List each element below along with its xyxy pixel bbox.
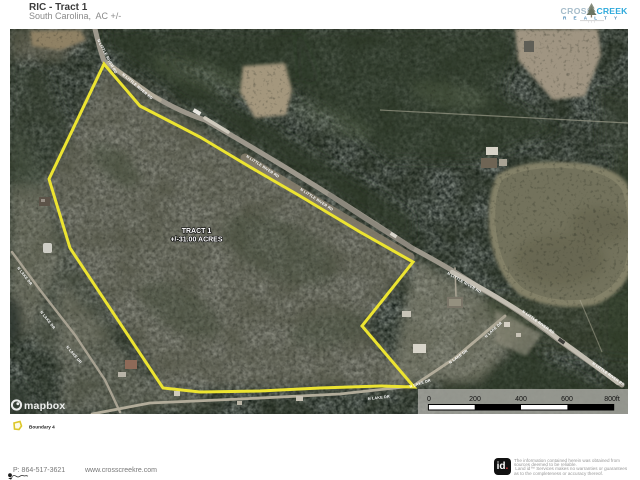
svg-text:Boundary 4: Boundary 4	[29, 424, 55, 429]
svg-text:TRACT 1: TRACT 1	[182, 228, 212, 235]
svg-text:REALTY: REALTY	[563, 15, 624, 20]
svg-text:mapbox: mapbox	[24, 400, 65, 412]
svg-text:***: ***	[588, 22, 597, 25]
svg-text:200: 200	[469, 396, 481, 403]
svg-text:600: 600	[561, 396, 573, 403]
svg-text:0: 0	[427, 396, 431, 403]
svg-text:400: 400	[515, 396, 527, 403]
svg-text:+/-31.00 ACRES: +/-31.00 ACRES	[170, 236, 222, 243]
svg-text:800ft: 800ft	[604, 396, 620, 403]
